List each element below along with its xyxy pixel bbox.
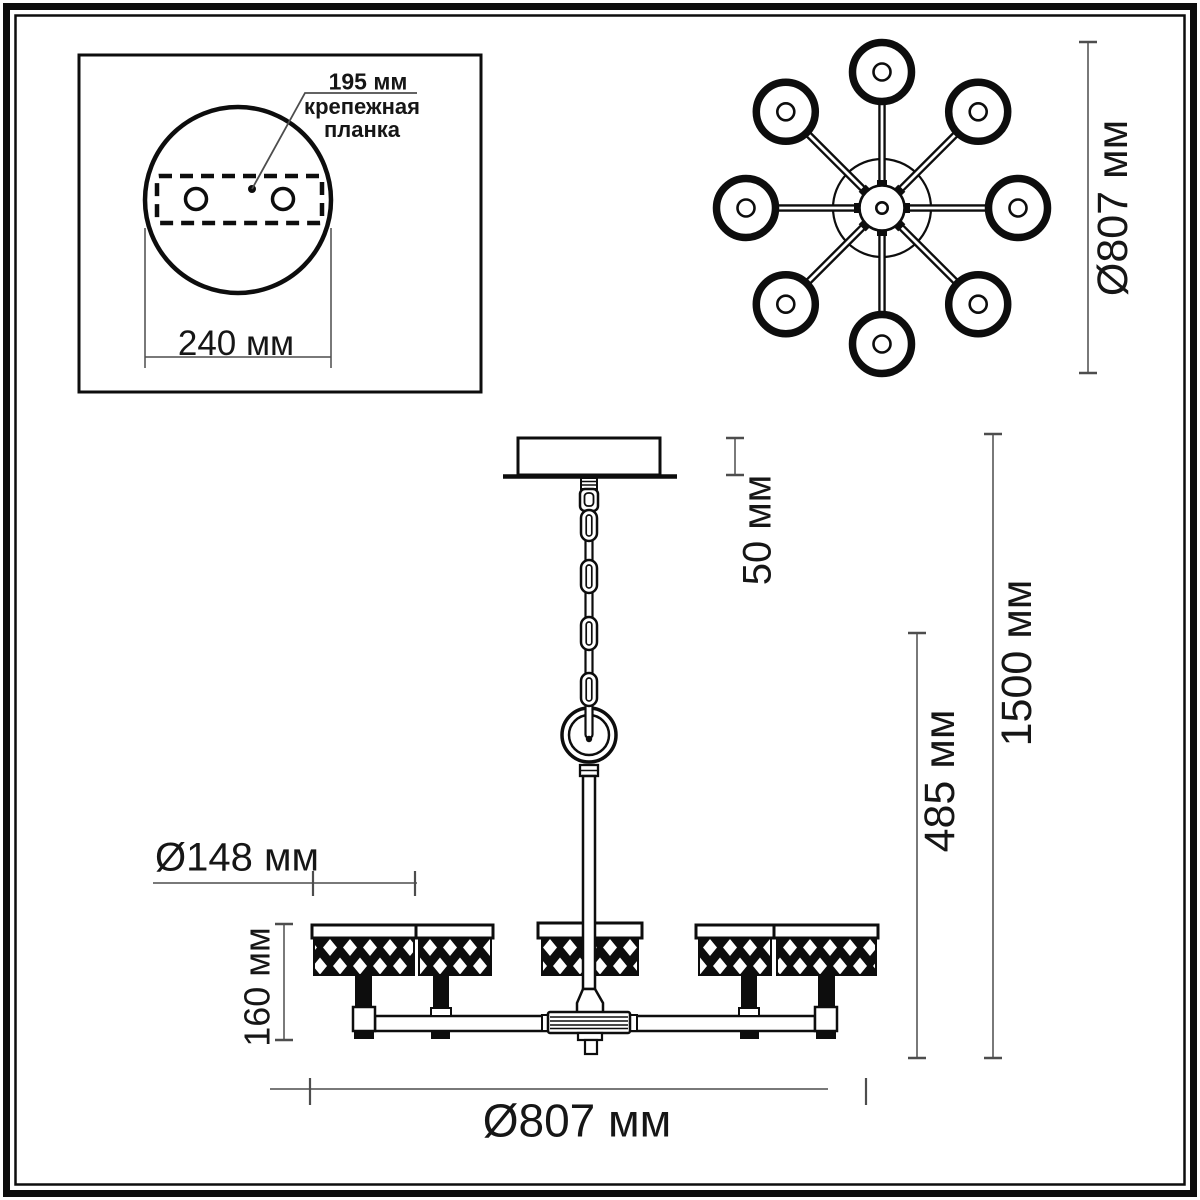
top-view-diameter-dimension-label: Ø807 мм [1092, 120, 1136, 296]
shade-diameter-dimension-label: Ø148 мм [155, 838, 319, 879]
drawing-page: 195 мм крепежная планка 240 мм Ø807 мм 5… [0, 0, 1200, 1200]
shade-height-dimension-label: 160 мм [240, 927, 277, 1047]
canopy-height-dimension-label: 50 мм [738, 475, 779, 586]
mounting-plate-label: крепежная планка [304, 95, 420, 141]
total-height-dimension-label: 1500 мм [996, 580, 1040, 747]
top-view-drawing [717, 42, 1098, 374]
side-view-diameter-dimension-label: Ø807 мм [483, 1098, 672, 1145]
mounting-plate-label-line1: крепежная [304, 95, 420, 118]
base-width-dimension-label: 240 мм [178, 326, 294, 362]
side-view-drawing [153, 434, 1002, 1105]
mounting-plate-label-line2: планка [304, 118, 420, 141]
body-height-dimension-label: 485 мм [919, 710, 963, 853]
plate-offset-dimension-label: 195 мм [329, 70, 408, 93]
